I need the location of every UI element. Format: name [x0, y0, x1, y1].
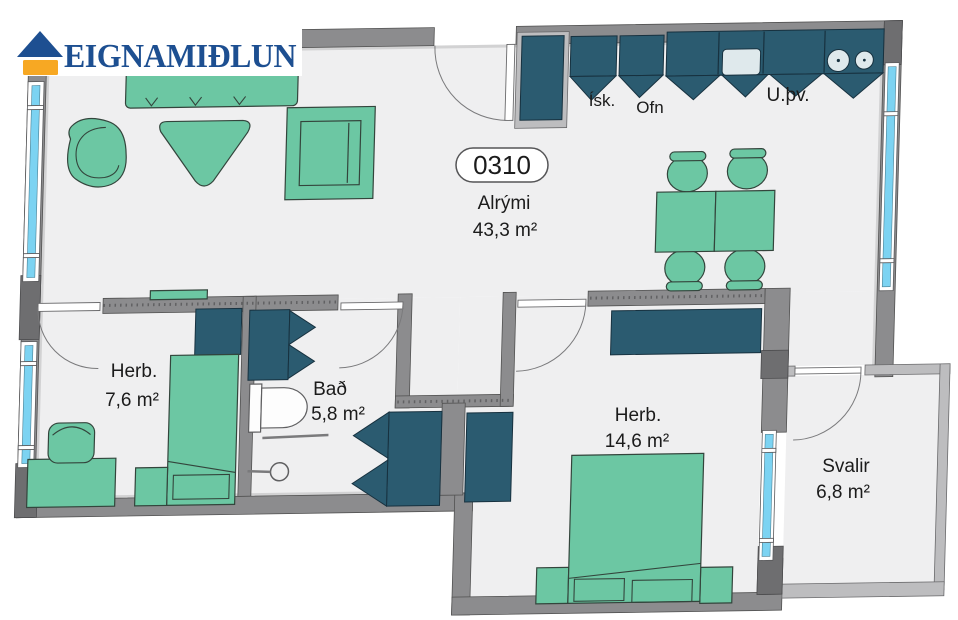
window-mullion — [880, 259, 894, 263]
wall-balcony-bottom — [782, 582, 944, 598]
nightstand — [536, 567, 569, 603]
floor-plan-page: 0310 Alrými 43,3 m² Herb. 7,6 m² Bað 5,8… — [0, 0, 958, 620]
dining-chair-back — [726, 281, 762, 291]
pillar-balcony-door — [761, 350, 789, 378]
wall-bath-right — [395, 294, 412, 408]
single-bed — [167, 354, 239, 505]
room-label-bad: Bað — [313, 379, 347, 400]
window-mullion — [27, 105, 43, 109]
dining-chair — [724, 249, 765, 286]
dining-chair-back — [666, 281, 702, 291]
drain-pipe — [247, 471, 270, 472]
bath-door-leaf — [341, 302, 403, 310]
wall-shelf — [150, 290, 207, 300]
brand-name: EIGNAMIÐLUN — [64, 38, 297, 75]
herb-small-door-leaf — [38, 303, 100, 312]
bedroom-top-wardrobe — [610, 309, 761, 355]
hall-closet — [387, 411, 443, 506]
room-area-bad: 5,8 m² — [311, 404, 365, 425]
oven — [619, 35, 664, 76]
brand-logo: EIGNAMIÐLUN — [12, 28, 302, 76]
frame-chair — [285, 106, 375, 199]
dining-chair-back — [730, 149, 766, 159]
wall-closet-divider — [440, 403, 465, 495]
appliance-label-fridge: Ísk. — [589, 91, 615, 110]
desk-chair — [48, 423, 95, 464]
desk — [27, 458, 116, 507]
appliance-label-utility: U.þv. — [767, 85, 810, 106]
nightstand — [135, 467, 168, 505]
window-mullion — [759, 538, 773, 542]
logo-house-body-icon — [23, 60, 58, 75]
room-label-svalir: Svalir — [822, 456, 870, 477]
room-area-alrymi: 43,3 m² — [473, 220, 537, 241]
window-mullion — [18, 445, 34, 449]
room-label-herb-large: Herb. — [615, 405, 661, 426]
room-area-svalir: 6,8 m² — [816, 482, 870, 503]
wall-balcony-top-b — [865, 364, 950, 375]
toilet-cistern — [249, 384, 262, 432]
fridge — [570, 36, 617, 77]
dining-table-half — [714, 190, 775, 251]
unit-number: 0310 — [473, 150, 531, 180]
room-area-herb-large: 14,6 m² — [605, 431, 669, 452]
balcony-door-leaf — [795, 367, 861, 374]
dining-chair — [664, 249, 705, 286]
herb-small-wardrobe — [195, 308, 242, 355]
window-mullion — [884, 112, 898, 116]
wall-balcony-top-a — [788, 366, 795, 376]
floor-plan-drawing — [12, 20, 958, 620]
bedroom-side-wardrobe — [465, 412, 513, 502]
bath-cabinet — [248, 310, 290, 381]
wall-niche-flange — [500, 292, 516, 406]
window-mullion — [23, 253, 39, 257]
window-mullion — [762, 448, 776, 452]
appliance-label-oven: Ofn — [636, 98, 663, 117]
pillar-right-top — [883, 21, 902, 65]
dining-chair-back — [670, 151, 706, 161]
kitchen-sink — [722, 49, 761, 76]
nightstand — [700, 567, 733, 603]
room-label-alrymi: Alrými — [478, 193, 531, 214]
bedroom-door-leaf — [518, 299, 586, 307]
floor-plan-canvas: 0310 Alrými 43,3 m² Herb. 7,6 m² Bað 5,8… — [0, 0, 958, 620]
entry-closet — [520, 36, 564, 121]
window-mullion — [20, 361, 36, 365]
room-label-herb-small: Herb. — [111, 361, 157, 382]
kitchen-counter — [666, 29, 884, 76]
dining-table-half — [655, 191, 716, 252]
room-area-herb-small: 7,6 m² — [105, 390, 159, 411]
entrance-door-leaf — [505, 44, 515, 120]
